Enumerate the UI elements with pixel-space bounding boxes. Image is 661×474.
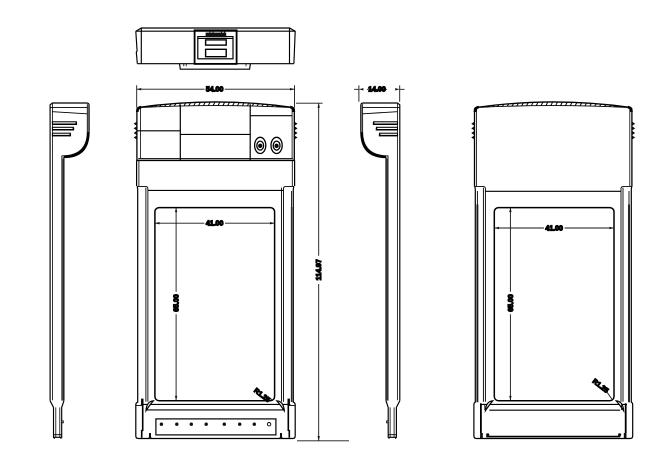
svg-text:54.00: 54.00 [206,87,224,94]
svg-text:14.00: 14.00 [368,87,386,94]
svg-text:41.00: 41.00 [206,221,224,228]
svg-text:65.00: 65.00 [174,294,181,312]
svg-text:65.00: 65.00 [508,294,515,312]
svg-text:114.97: 114.97 [316,259,323,280]
svg-text:41.00: 41.00 [545,225,563,232]
